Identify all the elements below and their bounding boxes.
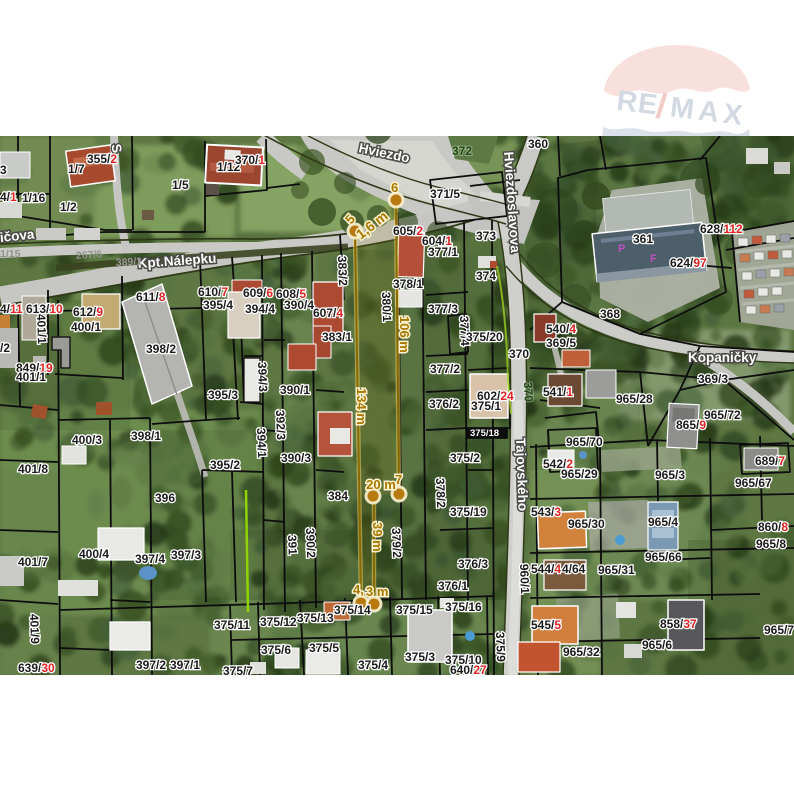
svg-text:401/7: 401/7 xyxy=(18,555,48,569)
svg-text:390/2: 390/2 xyxy=(303,528,318,559)
svg-text:373: 373 xyxy=(476,229,496,243)
svg-text:390/3: 390/3 xyxy=(281,451,311,465)
svg-text:397/3: 397/3 xyxy=(171,548,201,562)
svg-text:375/9: 375/9 xyxy=(493,632,508,663)
svg-text:371/5: 371/5 xyxy=(430,187,460,201)
svg-text:383/1: 383/1 xyxy=(322,330,352,344)
svg-text:391: 391 xyxy=(285,535,300,556)
svg-text:378/1: 378/1 xyxy=(393,277,423,291)
svg-text:400/1: 400/1 xyxy=(71,320,101,334)
svg-text:375/1: 375/1 xyxy=(471,399,501,413)
svg-text:394/4: 394/4 xyxy=(245,302,275,316)
svg-text:375/15: 375/15 xyxy=(396,603,433,617)
svg-text:545/5: 545/5 xyxy=(531,618,561,632)
svg-text:375/12: 375/12 xyxy=(260,615,297,629)
svg-text:375/7: 375/7 xyxy=(223,664,253,678)
svg-text:375/14: 375/14 xyxy=(334,603,371,617)
svg-text:Kopaničky: Kopaničky xyxy=(688,350,757,365)
svg-text:375/2: 375/2 xyxy=(450,451,480,465)
svg-text:375/6: 375/6 xyxy=(261,643,291,657)
svg-text:4/64: 4/64 xyxy=(562,562,586,576)
svg-text:540/4: 540/4 xyxy=(546,322,576,336)
svg-text:965/7: 965/7 xyxy=(764,623,794,637)
svg-text:375/13: 375/13 xyxy=(297,611,334,625)
svg-text:395/4: 395/4 xyxy=(203,298,233,312)
svg-text:MAX: MAX xyxy=(668,91,748,132)
svg-text:397/4: 397/4 xyxy=(135,552,165,566)
svg-text:375/4: 375/4 xyxy=(358,658,388,672)
svg-text:610/7: 610/7 xyxy=(198,285,228,299)
svg-text:395/3: 395/3 xyxy=(208,388,238,402)
svg-text:965/30: 965/30 xyxy=(568,517,605,531)
svg-text:39 m: 39 m xyxy=(370,522,385,552)
svg-text:360: 360 xyxy=(528,137,548,151)
svg-text:397/1: 397/1 xyxy=(170,658,200,672)
svg-text:1/16: 1/16 xyxy=(22,191,46,205)
svg-text:368: 368 xyxy=(600,307,620,321)
svg-text:4/11: 4/11 xyxy=(0,302,23,316)
svg-text:858/37: 858/37 xyxy=(660,617,697,631)
svg-text:865/9: 865/9 xyxy=(676,418,706,432)
svg-text:369/5: 369/5 xyxy=(546,336,576,350)
svg-text:394/3: 394/3 xyxy=(255,362,270,393)
svg-text:374: 374 xyxy=(476,269,496,283)
svg-text:960/1: 960/1 xyxy=(517,564,532,595)
svg-text:607/4: 607/4 xyxy=(313,306,343,320)
svg-text:4/1: 4/1 xyxy=(0,190,17,204)
svg-text:965/72: 965/72 xyxy=(704,408,741,422)
svg-text:379/2: 379/2 xyxy=(389,528,404,559)
svg-text:377/3: 377/3 xyxy=(428,302,458,316)
svg-text:375/3: 375/3 xyxy=(405,650,435,664)
svg-text:395/2: 395/2 xyxy=(210,458,240,472)
svg-text:965/67: 965/67 xyxy=(735,476,772,490)
svg-text:401/8: 401/8 xyxy=(18,462,48,476)
svg-text:965/70: 965/70 xyxy=(566,435,603,449)
svg-text:965/29: 965/29 xyxy=(561,467,598,481)
svg-text:370: 370 xyxy=(521,382,536,403)
svg-text:3: 3 xyxy=(0,163,7,177)
svg-text:4,: 4, xyxy=(353,582,364,597)
svg-text:392/3: 392/3 xyxy=(273,410,288,441)
svg-text:106 m: 106 m xyxy=(397,316,412,353)
svg-text:F: F xyxy=(650,253,657,265)
svg-text:628/112: 628/112 xyxy=(700,222,743,236)
svg-text:369/3: 369/3 xyxy=(698,372,728,386)
svg-text:390/1: 390/1 xyxy=(280,383,310,397)
svg-text:3 m: 3 m xyxy=(366,584,388,599)
svg-text:Tajovského: Tajovského xyxy=(513,438,531,512)
svg-text:6: 6 xyxy=(391,180,398,195)
svg-text:401/9: 401/9 xyxy=(27,614,42,645)
svg-text:378/2: 378/2 xyxy=(433,478,448,509)
svg-text:RE: RE xyxy=(615,85,660,122)
svg-text:377/1: 377/1 xyxy=(428,245,458,259)
svg-text:361: 361 xyxy=(633,232,653,246)
svg-text:612/9: 612/9 xyxy=(73,305,103,319)
svg-text:400/4: 400/4 xyxy=(79,547,109,561)
svg-text:605/2: 605/2 xyxy=(393,224,423,238)
svg-text:394/1: 394/1 xyxy=(254,428,269,459)
svg-text:544/4: 544/4 xyxy=(531,562,561,576)
svg-text:397/2: 397/2 xyxy=(136,658,166,672)
svg-text:543/3: 543/3 xyxy=(531,505,561,519)
svg-text:965/3: 965/3 xyxy=(655,468,685,482)
svg-text:375/5: 375/5 xyxy=(309,641,339,655)
svg-text:377/2: 377/2 xyxy=(430,362,460,376)
svg-text:613/10: 613/10 xyxy=(26,302,63,316)
svg-text:375/11: 375/11 xyxy=(214,618,250,632)
svg-text:1/5: 1/5 xyxy=(172,178,189,192)
svg-text:1/2: 1/2 xyxy=(60,200,77,214)
svg-text:396: 396 xyxy=(155,491,175,505)
svg-text:609/6: 609/6 xyxy=(243,286,273,300)
svg-text:375/16: 375/16 xyxy=(445,600,482,614)
svg-text:355/2: 355/2 xyxy=(87,152,117,166)
svg-text:965/4: 965/4 xyxy=(648,515,678,529)
svg-text:267/6: 267/6 xyxy=(76,249,103,262)
svg-text:639/30: 639/30 xyxy=(18,661,55,675)
svg-text:376/1: 376/1 xyxy=(438,579,468,593)
svg-text:7: 7 xyxy=(395,472,402,487)
svg-text:965/66: 965/66 xyxy=(645,550,682,564)
svg-text:375/20: 375/20 xyxy=(466,330,503,344)
svg-text:372: 372 xyxy=(452,144,472,158)
svg-text:860/8: 860/8 xyxy=(758,520,788,534)
svg-text:390/4: 390/4 xyxy=(284,298,314,312)
svg-text:398/1: 398/1 xyxy=(131,429,161,443)
svg-text:383/2: 383/2 xyxy=(335,256,350,287)
svg-text:376/3: 376/3 xyxy=(458,557,488,571)
svg-text:375/18: 375/18 xyxy=(470,428,499,439)
svg-text:134 m: 134 m xyxy=(354,388,369,425)
svg-text:965/8: 965/8 xyxy=(756,537,786,551)
svg-text:965/6: 965/6 xyxy=(642,638,672,652)
svg-text:401/1: 401/1 xyxy=(16,370,46,384)
svg-text:375/19: 375/19 xyxy=(450,505,487,519)
svg-text:384: 384 xyxy=(328,489,348,503)
svg-text:1/7: 1/7 xyxy=(68,162,85,176)
svg-text:624/97: 624/97 xyxy=(670,256,707,270)
svg-text:400/3: 400/3 xyxy=(72,433,102,447)
svg-text:541/1: 541/1 xyxy=(543,385,573,399)
svg-text:20 m: 20 m xyxy=(366,477,396,492)
svg-text:398/2: 398/2 xyxy=(146,342,176,356)
svg-text:965/31: 965/31 xyxy=(598,563,635,577)
svg-text:611/8: 611/8 xyxy=(136,290,166,304)
svg-text:640/27: 640/27 xyxy=(450,663,487,677)
svg-text:380/1: 380/1 xyxy=(379,292,394,323)
svg-text:370: 370 xyxy=(509,347,529,361)
svg-text:370/1: 370/1 xyxy=(235,153,265,167)
svg-text:1/15: 1/15 xyxy=(0,248,21,260)
svg-text:965/32: 965/32 xyxy=(563,645,600,659)
svg-text:965/28: 965/28 xyxy=(616,392,653,406)
svg-text:376/2: 376/2 xyxy=(429,397,459,411)
svg-text:P: P xyxy=(618,243,625,255)
svg-text:401/1: 401/1 xyxy=(34,314,49,345)
svg-text:389/1: 389/1 xyxy=(116,256,143,269)
svg-text:689/7: 689/7 xyxy=(755,454,785,468)
svg-text:/2: /2 xyxy=(0,341,10,355)
